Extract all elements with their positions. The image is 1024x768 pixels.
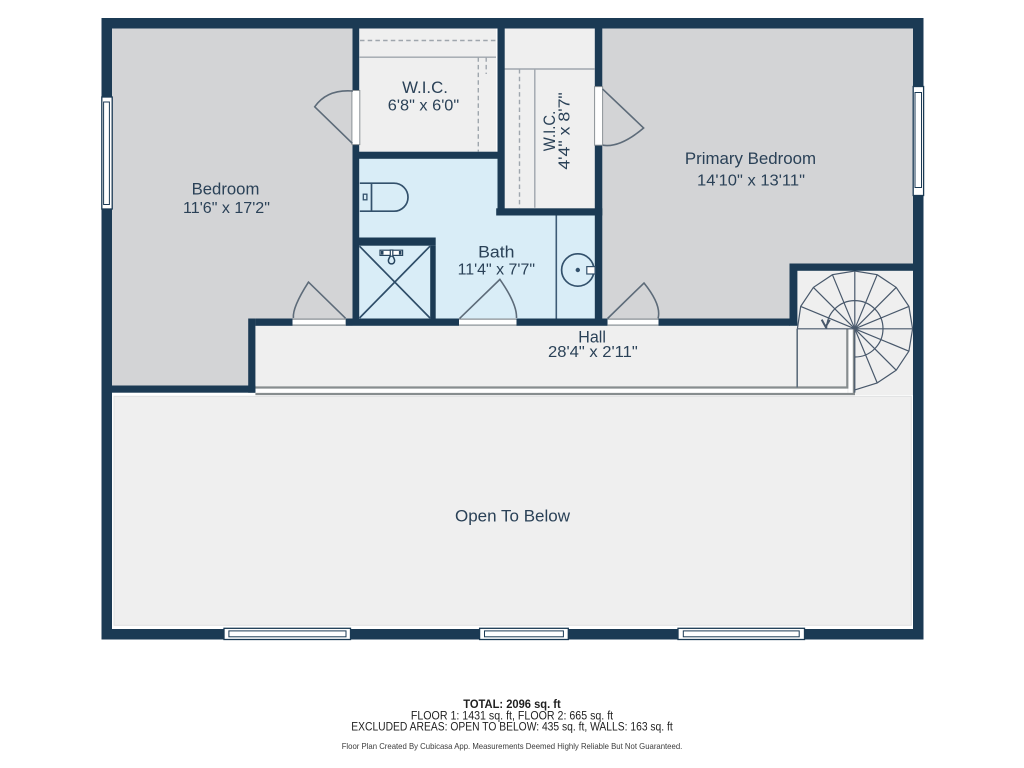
- svg-text:Bath: Bath: [478, 243, 514, 262]
- svg-text:28'4" x 2'11": 28'4" x 2'11": [548, 344, 638, 361]
- svg-text:14'10" x 13'11": 14'10" x 13'11": [697, 172, 805, 189]
- svg-text:6'8" x 6'0": 6'8" x 6'0": [388, 98, 459, 115]
- svg-text:Floor Plan Created By Cubicasa: Floor Plan Created By Cubicasa App. Meas…: [342, 741, 683, 751]
- svg-text:11'4" x 7'7": 11'4" x 7'7": [458, 261, 535, 278]
- svg-text:Bedroom: Bedroom: [192, 180, 260, 199]
- svg-text:11'6" x 17'2": 11'6" x 17'2": [183, 200, 270, 217]
- svg-text:EXCLUDED AREAS: OPEN TO BELOW:: EXCLUDED AREAS: OPEN TO BELOW: 435 sq. f…: [351, 719, 673, 733]
- svg-text:4'4" x 8'7": 4'4" x 8'7": [557, 92, 574, 169]
- svg-text:Open To Below: Open To Below: [455, 507, 571, 526]
- svg-text:Primary Bedroom: Primary Bedroom: [685, 149, 816, 168]
- svg-text:W.I.C.: W.I.C.: [402, 78, 448, 97]
